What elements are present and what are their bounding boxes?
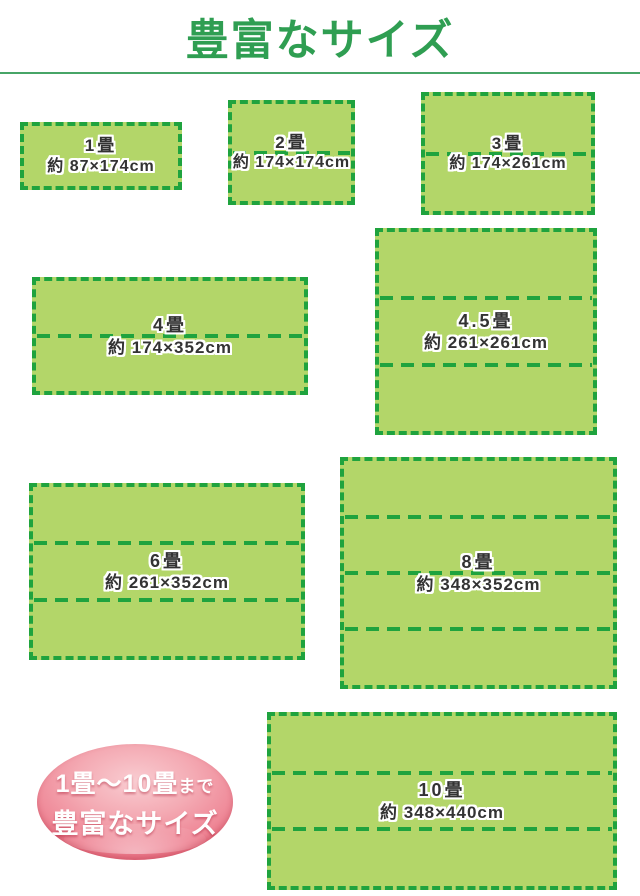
mat-name: 8畳 (417, 551, 541, 574)
mat-seam (345, 627, 612, 631)
size-chart-page: 豊富なサイズ 1畳 約 87×174cm 2畳 約 174×174cm 3畳 約… (0, 0, 640, 896)
mat-seam (380, 363, 592, 367)
mat-size: 約 87×174cm (47, 157, 154, 177)
mat-label: 3畳 約 174×261cm (449, 133, 566, 174)
mat-seam (272, 827, 612, 831)
badge-range-text: 1畳〜10畳 (56, 770, 179, 798)
mat-size: 約 174×352cm (108, 337, 232, 358)
mat-label: 4.5畳 約 261×261cm (424, 310, 548, 354)
mat-label: 10畳 約 348×440cm (380, 779, 504, 823)
mat-size: 約 348×352cm (417, 574, 541, 595)
mat-seam (34, 598, 300, 602)
mat-3jo: 3畳 約 174×261cm (421, 92, 595, 215)
badge-range-line: 1畳〜10畳まで (56, 764, 215, 800)
mat-seam (380, 296, 592, 300)
mat-6jo: 6畳 約 261×352cm (29, 483, 305, 660)
mat-size: 約 261×261cm (424, 332, 548, 353)
mat-label: 8畳 約 348×352cm (417, 551, 541, 595)
mat-label: 1畳 約 87×174cm (47, 135, 154, 176)
badge-caption: 豊富なサイズ (51, 802, 218, 841)
mat-name: 2畳 (233, 132, 350, 153)
mat-label: 6畳 約 261×352cm (105, 550, 229, 594)
mat-name: 1畳 (47, 135, 154, 156)
mat-name: 6畳 (105, 550, 229, 573)
mat-seam (34, 541, 300, 545)
title-divider (0, 72, 640, 74)
page-title: 豊富なサイズ (0, 6, 640, 68)
mat-name: 3畳 (449, 133, 566, 154)
size-range-badge: 1畳〜10畳まで 豊富なサイズ (37, 744, 233, 860)
mat-8jo: 8畳 約 348×352cm (340, 457, 617, 689)
mat-1jo: 1畳 約 87×174cm (20, 122, 182, 190)
mat-name: 4.5畳 (424, 310, 548, 333)
mat-name: 10畳 (380, 779, 504, 802)
mat-size: 約 261×352cm (105, 572, 229, 593)
mat-size: 約 174×174cm (233, 153, 350, 173)
mat-2jo: 2畳 約 174×174cm (228, 100, 355, 205)
mat-4half-jo: 4.5畳 約 261×261cm (375, 228, 597, 435)
mat-seam (272, 771, 612, 775)
badge-range-suffix: まで (178, 777, 214, 796)
mat-size: 約 348×440cm (380, 802, 504, 823)
mat-size: 約 174×261cm (449, 154, 566, 174)
mat-10jo: 10畳 約 348×440cm (267, 712, 617, 890)
mat-seam (345, 515, 612, 519)
mat-name: 4畳 (108, 314, 232, 337)
mat-label: 2畳 約 174×174cm (233, 132, 350, 173)
mat-label: 4畳 約 174×352cm (108, 314, 232, 358)
mat-4jo: 4畳 約 174×352cm (32, 277, 308, 395)
